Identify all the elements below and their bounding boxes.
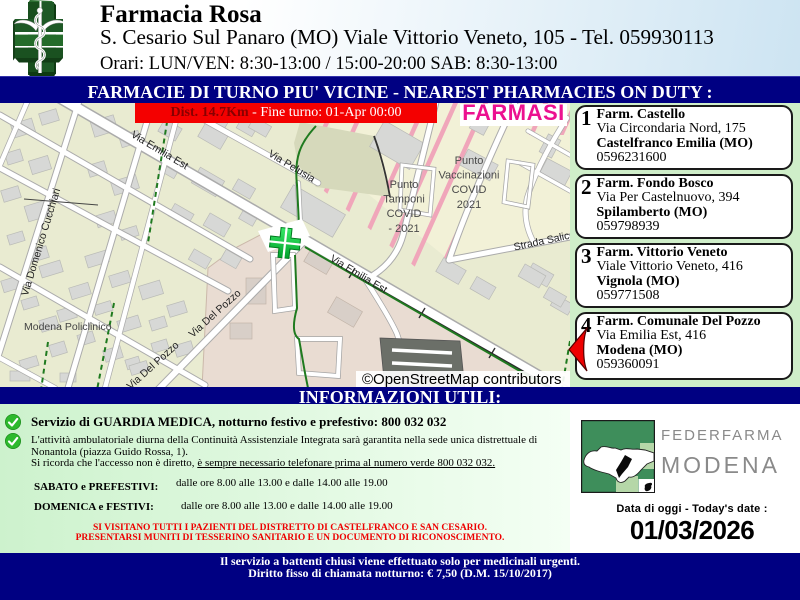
svg-text:Punto: Punto [390, 179, 419, 191]
svg-text:COVID: COVID [387, 208, 422, 220]
svg-text:Punto: Punto [455, 155, 484, 167]
svg-text:Modena Policlinico: Modena Policlinico [24, 321, 112, 333]
svg-text:2021: 2021 [457, 199, 481, 211]
svg-text:COVID: COVID [452, 184, 487, 196]
svg-text:Tamponi: Tamponi [383, 194, 425, 206]
svg-text:- 2021: - 2021 [388, 223, 419, 235]
svg-text:Vaccinazioni: Vaccinazioni [439, 170, 500, 182]
